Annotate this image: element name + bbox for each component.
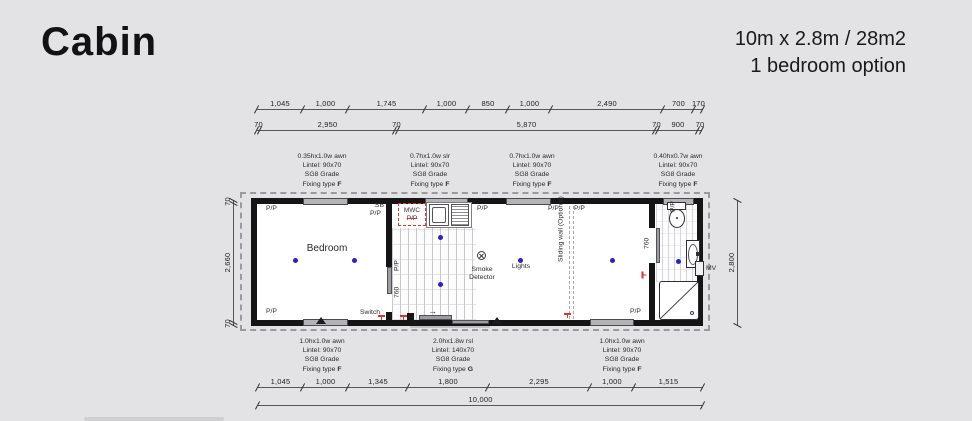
kitchen-drainer-icon bbox=[451, 204, 469, 226]
dim-segment: 700 bbox=[663, 98, 694, 110]
sliding-wall-line-1 bbox=[569, 206, 570, 319]
window-spec-bottom-1: 1.0hx1.0w awn Lintel: 90x70 SG8 Grade Fi… bbox=[299, 337, 344, 374]
light-icon bbox=[352, 258, 357, 263]
dim-segment: 1,000 bbox=[590, 376, 634, 388]
bathroom-door bbox=[656, 228, 661, 263]
page: Cabin 10m x 2.8m / 28m2 1 bedroom option… bbox=[0, 0, 972, 421]
window-spec-top-3: 0.7hx1.0w awn Lintel: 90x70 SG8 Grade Fi… bbox=[509, 152, 554, 189]
entry-slider-panel-2 bbox=[452, 320, 489, 325]
door-direction-arrow-icon: → bbox=[428, 306, 437, 316]
window-spec-top-2: 0.7hx1.0w slr Lintel: 90x70 SG8 Grade Fi… bbox=[410, 152, 450, 189]
switch-marker-icon bbox=[564, 313, 571, 319]
bathroom-wall-lower bbox=[649, 263, 655, 321]
dim-segment: 1,800 bbox=[408, 376, 488, 388]
window-spec-top-1: 0.35hx1.0w awn Lintel: 90x70 SG8 Grade F… bbox=[297, 152, 346, 189]
dim-segment: 70 bbox=[222, 200, 234, 203]
light-icon bbox=[518, 258, 523, 263]
light-icon bbox=[293, 258, 298, 263]
light-icon bbox=[438, 282, 443, 287]
switch-marker-icon bbox=[400, 315, 407, 321]
dim-segment: 2,295 bbox=[488, 376, 590, 388]
dim-segment: 2,950 bbox=[260, 119, 395, 131]
dim-segment: 1,745 bbox=[348, 98, 425, 110]
plan-subtitle: 10m x 2.8m / 28m2 1 bedroom option bbox=[735, 26, 906, 80]
dim-segment: 2,660 bbox=[222, 203, 234, 322]
dim-segment: 900 bbox=[658, 119, 698, 131]
pp-label: P/P bbox=[266, 308, 277, 317]
dim-segment: 1,045 bbox=[258, 376, 303, 388]
pp-label: P/P bbox=[266, 205, 277, 214]
lights-label: Lights bbox=[512, 263, 530, 272]
light-icon bbox=[610, 258, 615, 263]
kitchen-sink-bowl-icon bbox=[432, 207, 446, 223]
exterior-walls bbox=[251, 198, 703, 326]
mwc-pp-label: P/P bbox=[399, 215, 425, 224]
dim-segment: 1,000 bbox=[425, 98, 468, 110]
window-spec-bottom-2: 2.0hx1.8w rsl Lintel: 140x70 SG8 Grade F… bbox=[432, 337, 474, 374]
window-spec-bottom-3: 1.0hx1.0w awn Lintel: 90x70 SG8 Grade Fi… bbox=[599, 337, 644, 374]
dim-row-bottom-1: 1,045 1,000 1,345 1,800 2,295 1,000 1,51… bbox=[258, 376, 703, 388]
entry-arrow-icon bbox=[316, 317, 326, 324]
shower-tray-icon bbox=[659, 281, 699, 320]
mwc-box: MWC P/P bbox=[398, 203, 426, 226]
dim-segment: 10,000 bbox=[258, 394, 703, 406]
smoke-detector-label-2: Detector bbox=[469, 274, 495, 283]
dim-row-left: 70 2,660 70 bbox=[222, 200, 234, 325]
dim-segment: 2,800 bbox=[726, 200, 738, 325]
smoke-detector-icon bbox=[477, 251, 486, 260]
pp-label: P/P bbox=[477, 205, 488, 214]
switch-marker-icon bbox=[642, 272, 648, 279]
dim-segment: 2,490 bbox=[551, 98, 663, 110]
entry-threshold bbox=[410, 326, 490, 328]
bedroom-wall bbox=[386, 204, 392, 267]
dim-segment: 170 bbox=[694, 98, 703, 110]
pp-label: P/P bbox=[548, 205, 559, 214]
pp-label: P/P bbox=[370, 210, 381, 219]
window-living-bottom bbox=[590, 319, 634, 326]
pp-label: P/P bbox=[630, 308, 641, 317]
mwc-label: MWC bbox=[399, 207, 425, 216]
dim-segment: 1,000 bbox=[303, 98, 348, 110]
switch-marker-icon bbox=[378, 315, 385, 321]
subtitle-option: 1 bedroom option bbox=[735, 53, 906, 80]
entry-door-jamb bbox=[407, 313, 414, 322]
mv-label: MV bbox=[706, 265, 716, 274]
dim-segment: 1,000 bbox=[508, 98, 551, 110]
light-icon bbox=[676, 259, 681, 264]
window-living-top bbox=[506, 198, 551, 205]
bedroom-wall-stub bbox=[386, 312, 392, 321]
window-bedroom-top bbox=[303, 198, 348, 205]
basin-tap-icon bbox=[696, 252, 699, 256]
sliding-wall-line-2 bbox=[573, 206, 574, 319]
dim-segment: 850 bbox=[468, 98, 508, 110]
dim-segment: 1,515 bbox=[634, 376, 703, 388]
dim-row-total: 10,000 bbox=[258, 394, 703, 406]
bedroom-door bbox=[387, 267, 392, 294]
page-title: Cabin bbox=[41, 20, 157, 65]
room-label-bedroom: Bedroom bbox=[307, 243, 348, 254]
dim-segment: 1,345 bbox=[348, 376, 408, 388]
dim-row-right: 2,800 bbox=[726, 200, 738, 325]
dim-segment: 1,045 bbox=[257, 98, 303, 110]
subtitle-size: 10m x 2.8m / 28m2 bbox=[735, 26, 906, 53]
pp-label: P/P bbox=[574, 205, 585, 214]
cropped-text-fragment bbox=[84, 417, 224, 421]
mechanical-vent-icon bbox=[695, 261, 704, 276]
dim-segment: 5,870 bbox=[398, 119, 655, 131]
dim-segment: 70 bbox=[698, 119, 702, 131]
dim-row-top-2: 70 2,950 70 5,870 70 900 70 bbox=[257, 119, 702, 131]
dim-segment: 1,000 bbox=[303, 376, 348, 388]
window-spec-top-4: 0.40hx0.7w awn Lintel: 90x70 SG8 Grade F… bbox=[653, 152, 702, 189]
bathroom-wall bbox=[649, 204, 655, 228]
dim-row-top-1: 1,045 1,000 1,745 1,000 850 1,000 2,490 … bbox=[257, 98, 703, 110]
light-icon bbox=[438, 235, 443, 240]
entry-arrow-icon bbox=[492, 317, 502, 324]
